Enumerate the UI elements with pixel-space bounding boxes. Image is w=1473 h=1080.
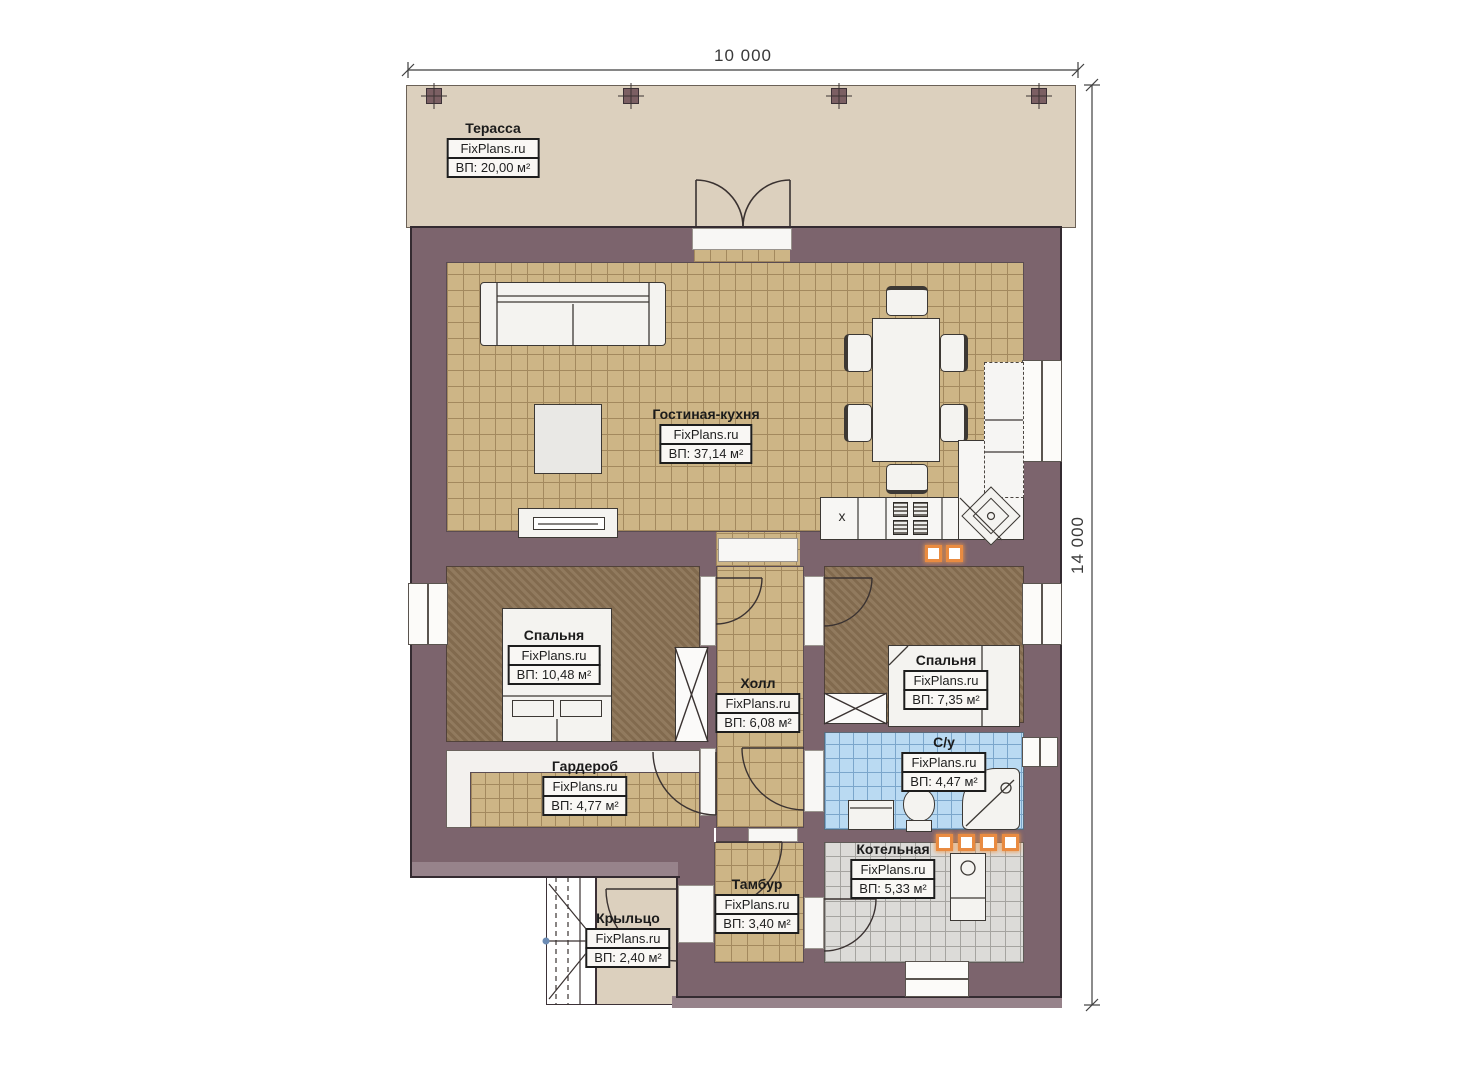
toilet-bowl: [903, 788, 935, 822]
area-tag: ВП: 37,14 м²: [660, 443, 753, 464]
branding-tag: FixPlans.ru: [903, 670, 988, 691]
area-tag: ВП: 2,40 м²: [585, 947, 670, 968]
wall-top-left: [412, 228, 694, 262]
room-name: Гардероб: [542, 758, 627, 774]
branding-tag: FixPlans.ru: [715, 693, 800, 714]
area-tag: ВП: 4,77 м²: [542, 795, 627, 816]
room-label-hall: Холл FixPlans.ruВП: 6,08 м²: [715, 675, 800, 733]
wall-notch-base: [412, 862, 678, 876]
room-name: Спальня: [508, 627, 601, 643]
area-tag: ВП: 20,00 м²: [447, 157, 540, 178]
dimension-height-label: 14 000: [1068, 516, 1088, 574]
branding-tag: FixPlans.ru: [660, 424, 753, 445]
floor-plan: 10 000 14 000: [0, 0, 1473, 1080]
stove-burner: [893, 520, 908, 535]
toilet-tank: [906, 820, 932, 832]
fridge-mark: x: [832, 508, 852, 528]
branding-tag: FixPlans.ru: [447, 138, 540, 159]
washbasin: [848, 800, 894, 830]
vent-mark: [1002, 834, 1019, 851]
outline-notch: [410, 876, 680, 878]
terrace-door-sill: [692, 228, 792, 250]
room-name: Гостиная-кухня: [652, 406, 759, 422]
branding-tag: FixPlans.ru: [542, 776, 627, 797]
dining-chair: [886, 286, 928, 316]
branding-tag: FixPlans.ru: [714, 894, 799, 915]
room-name: С/у: [901, 734, 986, 750]
room-label-porch: Крыльцо FixPlans.ruВП: 2,40 м²: [585, 910, 670, 968]
pillow: [512, 700, 554, 717]
dining-chair: [940, 404, 968, 442]
dining-table: [872, 318, 940, 462]
wall-bedroom-wardrobe: [446, 742, 700, 750]
terrace-post: [1031, 88, 1047, 104]
window-bathroom: [1022, 737, 1058, 767]
tv: [533, 517, 605, 530]
room-label-bedroom-left: Спальня FixPlans.ruВП: 10,48 м²: [508, 627, 601, 685]
vent-mark: [946, 545, 963, 562]
hall-tambour-threshold: [748, 828, 798, 842]
room-name: Терасса: [447, 120, 540, 136]
stove-burner: [893, 502, 908, 517]
area-tag: ВП: 4,47 м²: [901, 771, 986, 792]
dining-chair: [844, 334, 872, 372]
closet-left: [675, 647, 708, 742]
outline-left: [410, 226, 412, 878]
outline-bottom: [676, 996, 1062, 998]
area-tag: ВП: 5,33 м²: [850, 878, 935, 899]
wall-notch-bottom: [412, 828, 678, 862]
stove-burner: [913, 520, 928, 535]
door-gap-bathroom: [804, 750, 824, 812]
sofa: [480, 282, 666, 346]
dining-chair: [844, 404, 872, 442]
terrace-post: [426, 88, 442, 104]
boiler-unit: [950, 853, 986, 921]
room-label-bedroom-right: Спальня FixPlans.ruВП: 7,35 м²: [903, 652, 988, 710]
room-label-bathroom: С/у FixPlans.ruВП: 4,47 м²: [901, 734, 986, 792]
area-tag: ВП: 6,08 м²: [715, 712, 800, 733]
room-name: Крыльцо: [585, 910, 670, 926]
room-name: Тамбур: [714, 876, 799, 892]
door-gap-wardrobe: [700, 748, 716, 816]
vent-mark: [958, 834, 975, 851]
coffee-table: [534, 404, 602, 474]
wall-left: [412, 228, 446, 877]
room-label-wardrobe: Гардероб FixPlans.ruВП: 4,77 м²: [542, 758, 627, 816]
terrace-post: [831, 88, 847, 104]
room-label-tambour: Тамбур FixPlans.ruВП: 3,40 м²: [714, 876, 799, 934]
window-bedroom-right: [1022, 583, 1062, 645]
wall-bottom: [678, 963, 1060, 996]
area-tag: ВП: 7,35 м²: [903, 689, 988, 710]
door-gap-bedroom-right: [804, 576, 824, 646]
vent-mark: [936, 834, 953, 851]
window-kitchen: [1022, 360, 1062, 462]
door-gap-bedroom-left: [700, 576, 716, 646]
room-name: Спальня: [903, 652, 988, 668]
terrace-post: [623, 88, 639, 104]
room-label-boiler: Котельная FixPlans.ruВП: 5,33 м²: [850, 841, 935, 899]
wall-top-right: [790, 228, 1060, 262]
branding-tag: FixPlans.ru: [850, 859, 935, 880]
room-name: Котельная: [850, 841, 935, 857]
stove-burner: [913, 502, 928, 517]
branding-tag: FixPlans.ru: [585, 928, 670, 949]
branding-tag: FixPlans.ru: [508, 645, 601, 666]
dining-chair: [886, 464, 928, 494]
dimension-width-label: 10 000: [714, 46, 772, 66]
vent-mark: [980, 834, 997, 851]
room-label-terrace: Терасса FixPlans.ruВП: 20,00 м²: [447, 120, 540, 178]
branding-tag: FixPlans.ru: [901, 752, 986, 773]
room-label-living-kitchen: Гостиная-кухня FixPlans.ruВП: 37,14 м²: [652, 406, 759, 464]
window-bedroom-left: [408, 583, 448, 645]
room-name: Холл: [715, 675, 800, 691]
dining-chair: [940, 334, 968, 372]
area-tag: ВП: 3,40 м²: [714, 913, 799, 934]
area-tag: ВП: 10,48 м²: [508, 664, 601, 685]
window-boiler: [905, 961, 969, 997]
closet-right: [824, 693, 887, 724]
hall-living-threshold: [718, 538, 798, 562]
door-gap-boiler: [804, 897, 824, 949]
pillow: [560, 700, 602, 717]
vent-mark: [925, 545, 942, 562]
door-gap-porch: [678, 885, 714, 943]
kitchen-upper-cabinets: [984, 362, 1024, 498]
